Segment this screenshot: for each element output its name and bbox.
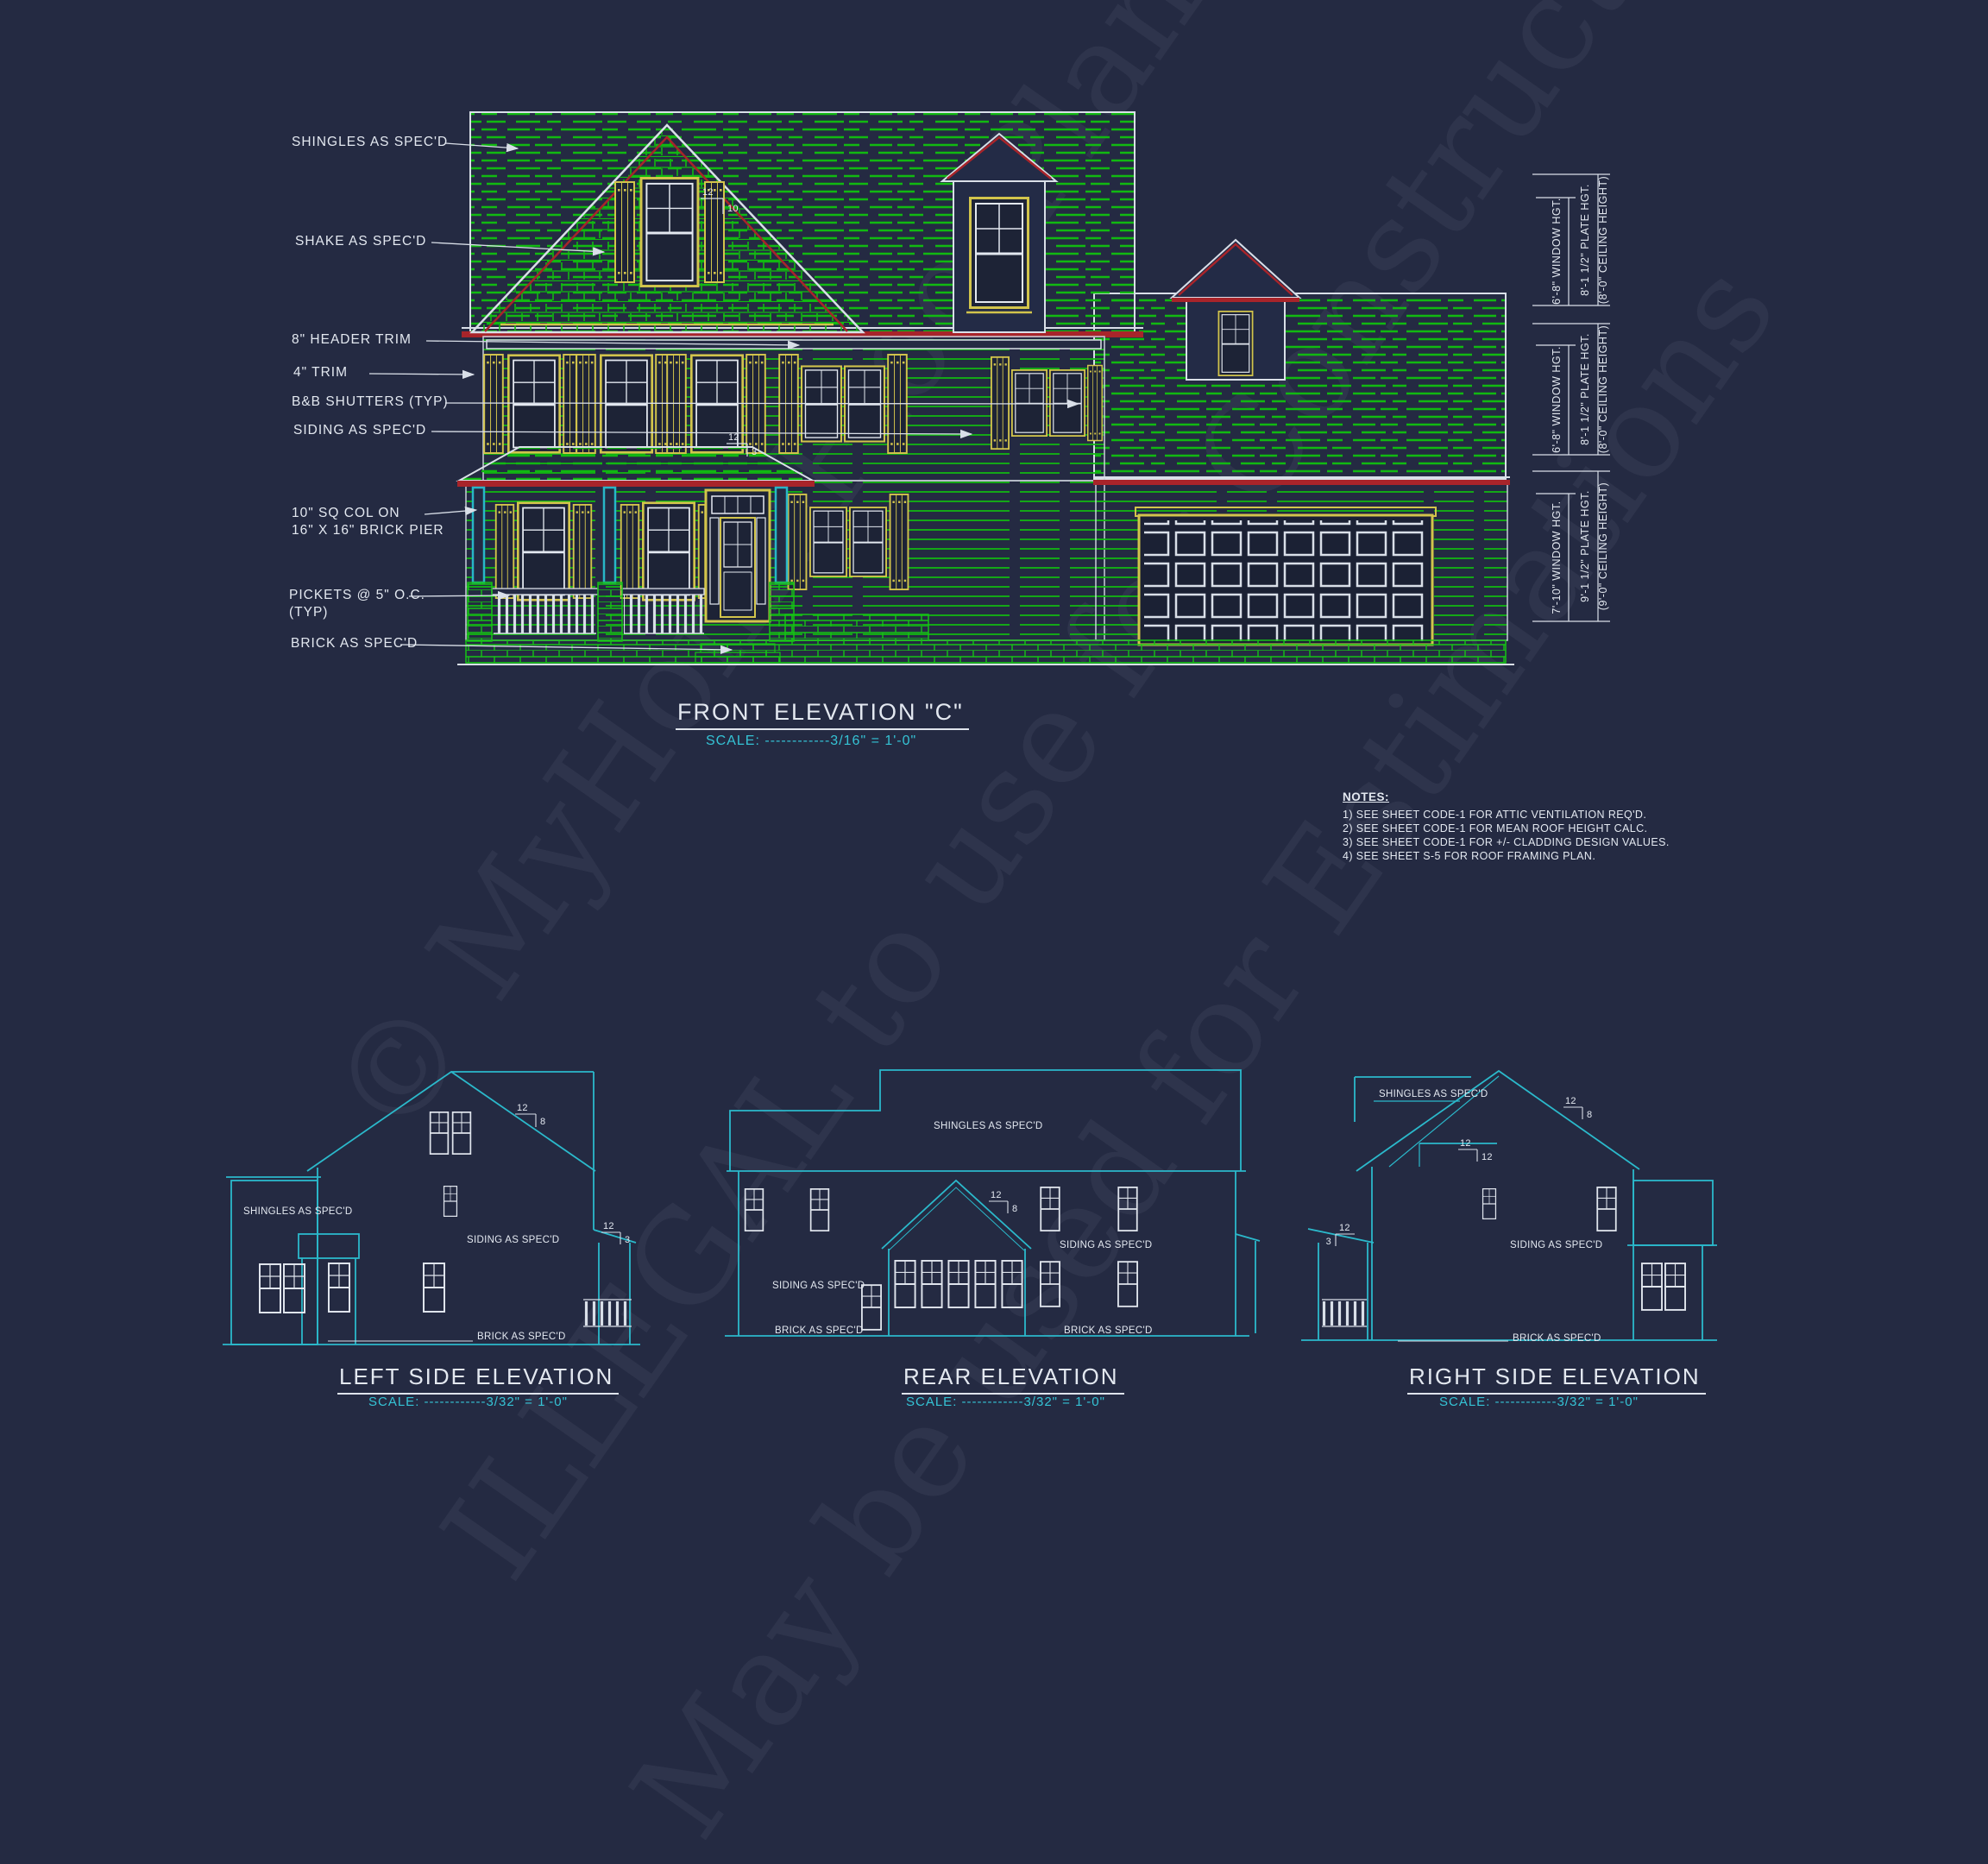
right-pitch-upper-run: 12 bbox=[1460, 1138, 1471, 1149]
notes-heading: NOTES: bbox=[1343, 790, 1389, 803]
left-pitch-porch-run: 12 bbox=[603, 1221, 614, 1231]
callout-header-trim: 8" HEADER TRIM bbox=[292, 332, 412, 348]
right-side-elevation-details: 12 8 12 12 12 3 SHINGLES AS SPEC'D SIDIN… bbox=[1322, 1089, 1685, 1344]
right-pitch-main-rise: 8 bbox=[1587, 1110, 1592, 1120]
right-label-shingles: SHINGLES AS SPEC'D bbox=[1379, 1089, 1488, 1099]
rear-pitch-rise: 8 bbox=[1012, 1204, 1017, 1214]
front-elevation-drawing: 12 10 12 3 bbox=[457, 112, 1514, 664]
right-label-siding: SIDING AS SPEC'D bbox=[1510, 1240, 1602, 1250]
dim-lower-ceiling: (9'-0" CEILING HEIGHT) bbox=[1597, 482, 1609, 610]
dim-lower-window: 7'-10" WINDOW HGT. bbox=[1551, 501, 1563, 614]
callout-trim: 4" TRIM bbox=[293, 365, 348, 381]
left-pitch-main-run: 12 bbox=[517, 1103, 528, 1113]
front-elevation-title: FRONT ELEVATION "C" bbox=[676, 699, 969, 730]
right-elevation-title: RIGHT SIDE ELEVATION bbox=[1407, 1363, 1706, 1395]
callout-pickets-line2: (TYP) bbox=[289, 605, 328, 620]
right-pitch-porch-rise: 3 bbox=[1326, 1237, 1331, 1247]
rear-elevation-title: REAR ELEVATION bbox=[902, 1363, 1124, 1395]
dim-middle-window: 6'-8" WINDOW HGT. bbox=[1551, 346, 1563, 453]
dimension-labels: 6'-8" WINDOW HGT. 8'-1 1/2" PLATE HGT. (… bbox=[1551, 176, 1609, 614]
callout-shingles: SHINGLES AS SPEC'D bbox=[292, 135, 448, 150]
right-pitch-upper-rise: 12 bbox=[1482, 1152, 1493, 1162]
callout-pickets-line1: PICKETS @ 5" O.C. bbox=[289, 588, 425, 603]
right-pitch-porch-run: 12 bbox=[1339, 1223, 1350, 1233]
rear-elevation-scale: SCALE: ------------3/32" = 1'-0" bbox=[906, 1395, 1105, 1409]
rear-elevation-details: 12 8 SHINGLES AS SPEC'D SIDING AS SPEC'D… bbox=[745, 1121, 1153, 1336]
rear-elevation-drawing bbox=[725, 1070, 1260, 1336]
right-pitch-main-run: 12 bbox=[1565, 1096, 1576, 1106]
front-pitch-porch-rise: 3 bbox=[752, 447, 757, 457]
left-label-siding: SIDING AS SPEC'D bbox=[467, 1235, 559, 1245]
dim-middle-plate: 8'-1 1/2" PLATE HGT. bbox=[1579, 333, 1591, 445]
front-elevation-scale: SCALE: ------------3/16" = 1'-0" bbox=[706, 734, 916, 749]
callout-shake: SHAKE AS SPEC'D bbox=[295, 234, 426, 249]
dim-upper-ceiling: (8'-0" CEILING HEIGHT) bbox=[1597, 176, 1609, 304]
callout-shutters: B&B SHUTTERS (TYP) bbox=[292, 394, 449, 410]
blueprint-sheet: 12 10 12 3 bbox=[0, 0, 1988, 1491]
callout-column-line1: 10" SQ COL ON bbox=[292, 506, 400, 521]
dim-middle-ceiling: (8'-0" CEILING HEIGHT) bbox=[1597, 325, 1609, 453]
left-pitch-porch-rise: 3 bbox=[625, 1235, 630, 1245]
note-item-1: 1) SEE SHEET CODE-1 FOR ATTIC VENTILATIO… bbox=[1343, 808, 1646, 822]
left-label-brick: BRICK AS SPEC'D bbox=[477, 1332, 566, 1342]
note-item-3: 3) SEE SHEET CODE-1 FOR +/- CLADDING DES… bbox=[1343, 835, 1670, 849]
right-elevation-scale: SCALE: ------------3/32" = 1'-0" bbox=[1439, 1395, 1639, 1409]
dim-upper-plate: 8'-1 1/2" PLATE HGT. bbox=[1579, 184, 1591, 296]
rear-label-siding-left: SIDING AS SPEC'D bbox=[772, 1281, 865, 1291]
left-elevation-title: LEFT SIDE ELEVATION bbox=[337, 1363, 619, 1395]
right-label-brick: BRICK AS SPEC'D bbox=[1513, 1333, 1601, 1344]
front-pitch-porch-run: 12 bbox=[728, 432, 739, 443]
dim-upper-window: 6'-8" WINDOW HGT. bbox=[1551, 198, 1563, 305]
left-label-shingles: SHINGLES AS SPEC'D bbox=[243, 1206, 352, 1217]
note-item-2: 2) SEE SHEET CODE-1 FOR MEAN ROOF HEIGHT… bbox=[1343, 822, 1647, 835]
callout-column-line2: 16" X 16" BRICK PIER bbox=[292, 523, 444, 538]
callout-brick: BRICK AS SPEC'D bbox=[291, 636, 418, 652]
front-pitch-main-run: 12 bbox=[702, 187, 714, 198]
front-pitch-main-rise: 10 bbox=[727, 204, 739, 214]
rear-label-brick-left: BRICK AS SPEC'D bbox=[775, 1326, 864, 1336]
left-elevation-scale: SCALE: ------------3/32" = 1'-0" bbox=[368, 1395, 568, 1409]
rear-label-siding-right: SIDING AS SPEC'D bbox=[1060, 1240, 1152, 1250]
rear-pitch-run: 12 bbox=[991, 1190, 1002, 1200]
callout-siding: SIDING AS SPEC'D bbox=[293, 423, 426, 438]
left-pitch-main-rise: 8 bbox=[540, 1117, 545, 1127]
rear-label-shingles: SHINGLES AS SPEC'D bbox=[934, 1121, 1042, 1131]
note-item-4: 4) SEE SHEET S-5 FOR ROOF FRAMING PLAN. bbox=[1343, 849, 1595, 863]
rear-label-brick-right: BRICK AS SPEC'D bbox=[1064, 1326, 1153, 1336]
dim-lower-plate: 9'-1 1/2" PLATE HGT. bbox=[1579, 490, 1591, 602]
